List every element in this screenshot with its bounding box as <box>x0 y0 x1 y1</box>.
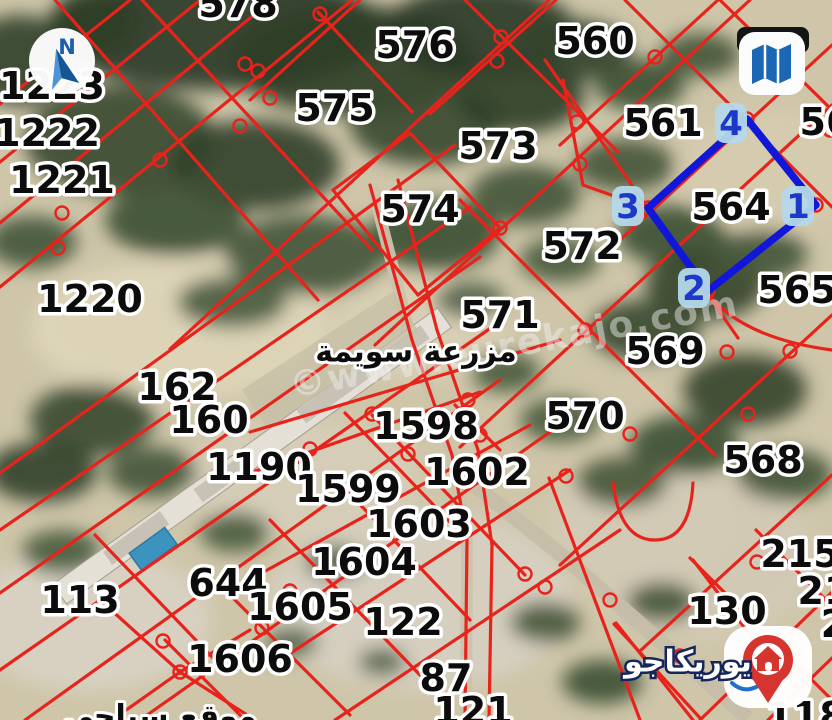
vertex-marker <box>177 669 183 675</box>
farm-name-label: مزرعة سويمة <box>315 335 517 370</box>
parcel-label: 569 <box>625 329 704 373</box>
corner-badge: 2 <box>678 268 710 309</box>
satellite-cadastral-map: ©www.eurekajo.com57857656057556156573574… <box>0 0 832 720</box>
logo-house-door <box>765 662 772 671</box>
corner-badge: 1 <box>782 186 814 227</box>
corner-badge-number: 3 <box>616 187 640 227</box>
tree-cluster <box>577 457 667 507</box>
parcel-label: 1221 <box>9 158 115 202</box>
parcel-label: 573 <box>458 124 537 168</box>
parcel-label: 56 <box>800 100 832 144</box>
parcel-label: 576 <box>375 23 454 67</box>
compass-north-icon: N <box>29 28 95 94</box>
parcel-label: 2 <box>821 602 832 646</box>
corner-badge: 4 <box>715 103 747 144</box>
brand-text: يوريكاجو <box>622 645 752 680</box>
parcel-label: 568 <box>723 438 802 482</box>
parcel-label: 1605 <box>247 585 353 629</box>
parcel-label: 575 <box>295 86 374 130</box>
parcel-label: 578 <box>198 0 277 26</box>
bottom-left-label: موقع سياحي <box>64 699 257 720</box>
corner-badge-number: 2 <box>682 269 706 309</box>
parcel-label: 113 <box>40 578 119 622</box>
parcel-label: 572 <box>542 224 621 268</box>
tree-cluster <box>105 185 245 255</box>
parcel-label: 1598 <box>373 404 479 448</box>
tree-cluster <box>177 276 287 328</box>
parcel-label: 1222 <box>0 111 100 155</box>
corner-badge-number: 4 <box>719 104 743 144</box>
parcel-label: 561 <box>623 101 702 145</box>
parcel-label: 1220 <box>37 277 143 321</box>
parcel-label: 565 <box>757 268 832 312</box>
tree-cluster <box>107 447 197 497</box>
corner-badge: 3 <box>612 186 644 227</box>
map-icon <box>737 27 809 95</box>
parcel-label: 121 <box>433 689 512 720</box>
tree-cluster <box>510 602 580 642</box>
parcel-label: 564 <box>691 185 770 229</box>
folded-map-glyph <box>752 44 791 84</box>
parcel-label: 574 <box>380 187 459 231</box>
parcel-label: 571 <box>460 293 539 337</box>
compass-north-letter: N <box>58 35 76 59</box>
parcel-label: 160 <box>169 398 248 442</box>
parcel-label: 570 <box>545 394 624 438</box>
parcel-label: 1606 <box>187 637 293 681</box>
corner-badge-number: 1 <box>786 187 810 227</box>
parcel-label: 1604 <box>311 540 417 584</box>
listing-map-image: ©www.eurekajo.com57857656057556156573574… <box>0 0 832 720</box>
tree-cluster <box>200 512 270 552</box>
parcel-label: 560 <box>555 19 634 63</box>
parcel-label: 1602 <box>424 450 530 494</box>
parcel-label: 122 <box>363 600 442 644</box>
